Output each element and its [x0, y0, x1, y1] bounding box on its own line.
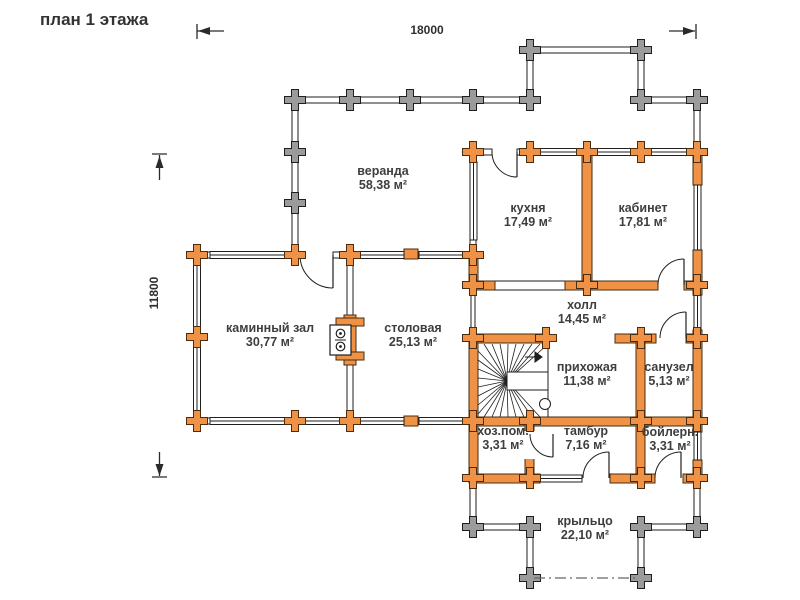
log-joint-warm — [687, 142, 708, 163]
room-area: 14,45 м² — [558, 312, 606, 326]
window-symbol — [694, 185, 701, 250]
page-title: план 1 этажа — [40, 10, 148, 30]
wall-segment — [292, 103, 298, 252]
log-joint-warm — [463, 328, 484, 349]
log-joint-warm — [520, 468, 541, 489]
log-joint-warm — [687, 275, 708, 296]
fireplace-stove-symbol — [330, 315, 364, 365]
log-joint-cold — [463, 517, 484, 538]
log-joint-warm — [631, 328, 652, 349]
log-joint-warm — [631, 142, 652, 163]
log-joint-warm — [340, 411, 361, 432]
room-label-bathroom: санузел 5,13 м² — [644, 360, 693, 388]
dimension-width-label: 18000 — [410, 23, 443, 37]
log-joint-cold — [520, 90, 541, 111]
log-joint-warm — [285, 245, 306, 266]
room-area: 30,77 м² — [226, 335, 314, 349]
log-joint-cold — [463, 90, 484, 111]
room-name: тамбур — [564, 424, 608, 438]
log-joint-warm — [687, 468, 708, 489]
window-symbol — [648, 149, 690, 156]
room-label-entry-hall: прихожая 11,38 м² — [557, 360, 617, 388]
wall-segment-solid — [582, 151, 592, 287]
wall-segment-solid — [404, 249, 418, 259]
room-name: бойлерн. — [642, 425, 698, 439]
room-name: холл — [558, 298, 606, 312]
room-name: крыльцо — [557, 514, 613, 528]
winder-staircase-symbol — [478, 344, 551, 417]
window-symbol — [358, 252, 404, 259]
window-symbol — [194, 265, 201, 328]
log-joint-cold — [285, 90, 306, 111]
wall-segment — [495, 281, 565, 290]
room-label-utility: хоз.пом. 3,31 м² — [477, 424, 529, 452]
log-joint-cold — [520, 517, 541, 538]
window-symbol — [210, 252, 288, 259]
room-name: санузел — [644, 360, 693, 374]
log-joint-cold — [687, 517, 708, 538]
room-area: 22,10 м² — [557, 528, 613, 542]
log-joint-cold — [285, 193, 306, 214]
log-walls — [194, 47, 703, 578]
room-label-fireplace-hall: каминный зал 30,77 м² — [226, 321, 314, 349]
log-joint-cold — [631, 40, 652, 61]
room-label-office: кабинет 17,81 м² — [618, 201, 667, 229]
log-joint-warm — [631, 468, 652, 489]
dimension-arrows — [152, 24, 696, 477]
window-symbol — [540, 149, 580, 156]
room-label-boiler: бойлерн. 3,31 м² — [642, 425, 698, 453]
log-joint-warm — [577, 275, 598, 296]
room-name: столовая — [384, 321, 441, 335]
log-joint-warm — [463, 468, 484, 489]
room-area: 5,13 м² — [644, 374, 693, 388]
window-symbol — [419, 252, 465, 259]
door-arc-entrance — [583, 452, 609, 478]
door-arc-bathroom — [660, 312, 686, 338]
window-symbol — [419, 418, 465, 425]
stair-direction-arrow-icon — [525, 352, 542, 362]
log-joint-cold — [687, 90, 708, 111]
window-symbol — [540, 475, 582, 482]
room-label-dining: столовая 25,13 м² — [384, 321, 441, 349]
room-label-veranda: веранда 58,38 м² — [357, 164, 409, 192]
room-area: 3,31 м² — [642, 439, 698, 453]
log-joint-warm — [520, 142, 541, 163]
log-joint-warm — [187, 245, 208, 266]
room-label-hall: холл 14,45 м² — [558, 298, 606, 326]
window-symbol — [694, 295, 701, 330]
window-symbol — [470, 162, 477, 240]
wall-segment — [347, 362, 353, 418]
log-joint-warm — [187, 327, 208, 348]
room-area: 3,31 м² — [477, 438, 529, 452]
window-symbol — [210, 418, 288, 425]
room-label-kitchen: кухня 17,49 м² — [504, 201, 552, 229]
door-arc-boiler — [655, 452, 681, 478]
room-area: 7,16 м² — [564, 438, 608, 452]
room-name: кухня — [504, 201, 552, 215]
room-label-porch: крыльцо 22,10 м² — [557, 514, 613, 542]
log-joint-warm — [463, 245, 484, 266]
stair-post — [540, 399, 551, 410]
log-joint-cold — [631, 517, 652, 538]
floor-plan-drawing — [0, 0, 800, 600]
wall-segment — [347, 258, 353, 317]
room-name: веранда — [357, 164, 409, 178]
room-area: 17,81 м² — [618, 215, 667, 229]
room-area: 58,38 м² — [357, 178, 409, 192]
log-joint-warm — [463, 275, 484, 296]
wall-segment-solid — [636, 334, 645, 482]
room-area: 25,13 м² — [384, 335, 441, 349]
wall-segment-solid — [404, 416, 418, 426]
window-symbol — [356, 418, 404, 425]
window-symbol — [194, 347, 201, 412]
log-joint-crosses — [187, 40, 708, 589]
log-joint-cold — [520, 40, 541, 61]
log-joint-warm — [463, 142, 484, 163]
door-arc-kitchen — [492, 152, 517, 177]
room-area: 17,49 м² — [504, 215, 552, 229]
log-joint-warm — [577, 142, 598, 163]
log-joint-warm — [285, 411, 306, 432]
log-joint-cold — [340, 90, 361, 111]
log-joint-warm — [687, 328, 708, 349]
wall-segment — [527, 47, 641, 53]
room-area: 11,38 м² — [557, 374, 617, 388]
log-joint-cold — [285, 142, 306, 163]
window-symbols — [194, 149, 702, 483]
room-name: прихожая — [557, 360, 617, 374]
room-name: каминный зал — [226, 321, 314, 335]
stair-landing — [507, 372, 548, 390]
room-name: хоз.пом. — [477, 424, 529, 438]
log-joint-cold — [400, 90, 421, 111]
stair-tread — [478, 351, 507, 381]
log-joint-cold — [631, 90, 652, 111]
room-name: кабинет — [618, 201, 667, 215]
room-label-tambour: тамбур 7,16 м² — [564, 424, 608, 452]
dimension-height-label: 11800 — [147, 277, 161, 310]
door-arc-office — [658, 259, 684, 285]
wall-segment-solid — [469, 334, 478, 482]
log-joint-warm — [340, 245, 361, 266]
door-arc-fireplace-hall — [300, 255, 333, 288]
floor-plan-page: план 1 этажа 18000 11800 веранда 58,38 м… — [0, 0, 800, 600]
log-joint-warm — [187, 411, 208, 432]
stair-tread — [492, 381, 507, 417]
